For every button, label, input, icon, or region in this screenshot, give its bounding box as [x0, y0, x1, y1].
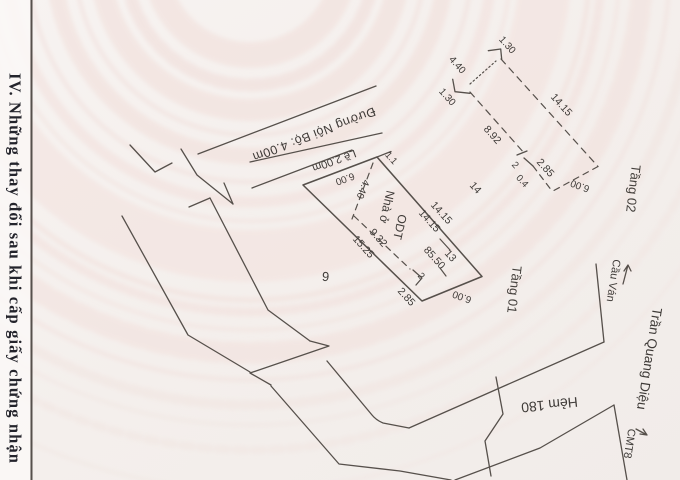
svg-text:6: 6 — [321, 269, 330, 285]
svg-text:IV. Những thay đổi sau khi cấp: IV. Những thay đổi sau khi cấp giấy chứn… — [6, 73, 25, 463]
